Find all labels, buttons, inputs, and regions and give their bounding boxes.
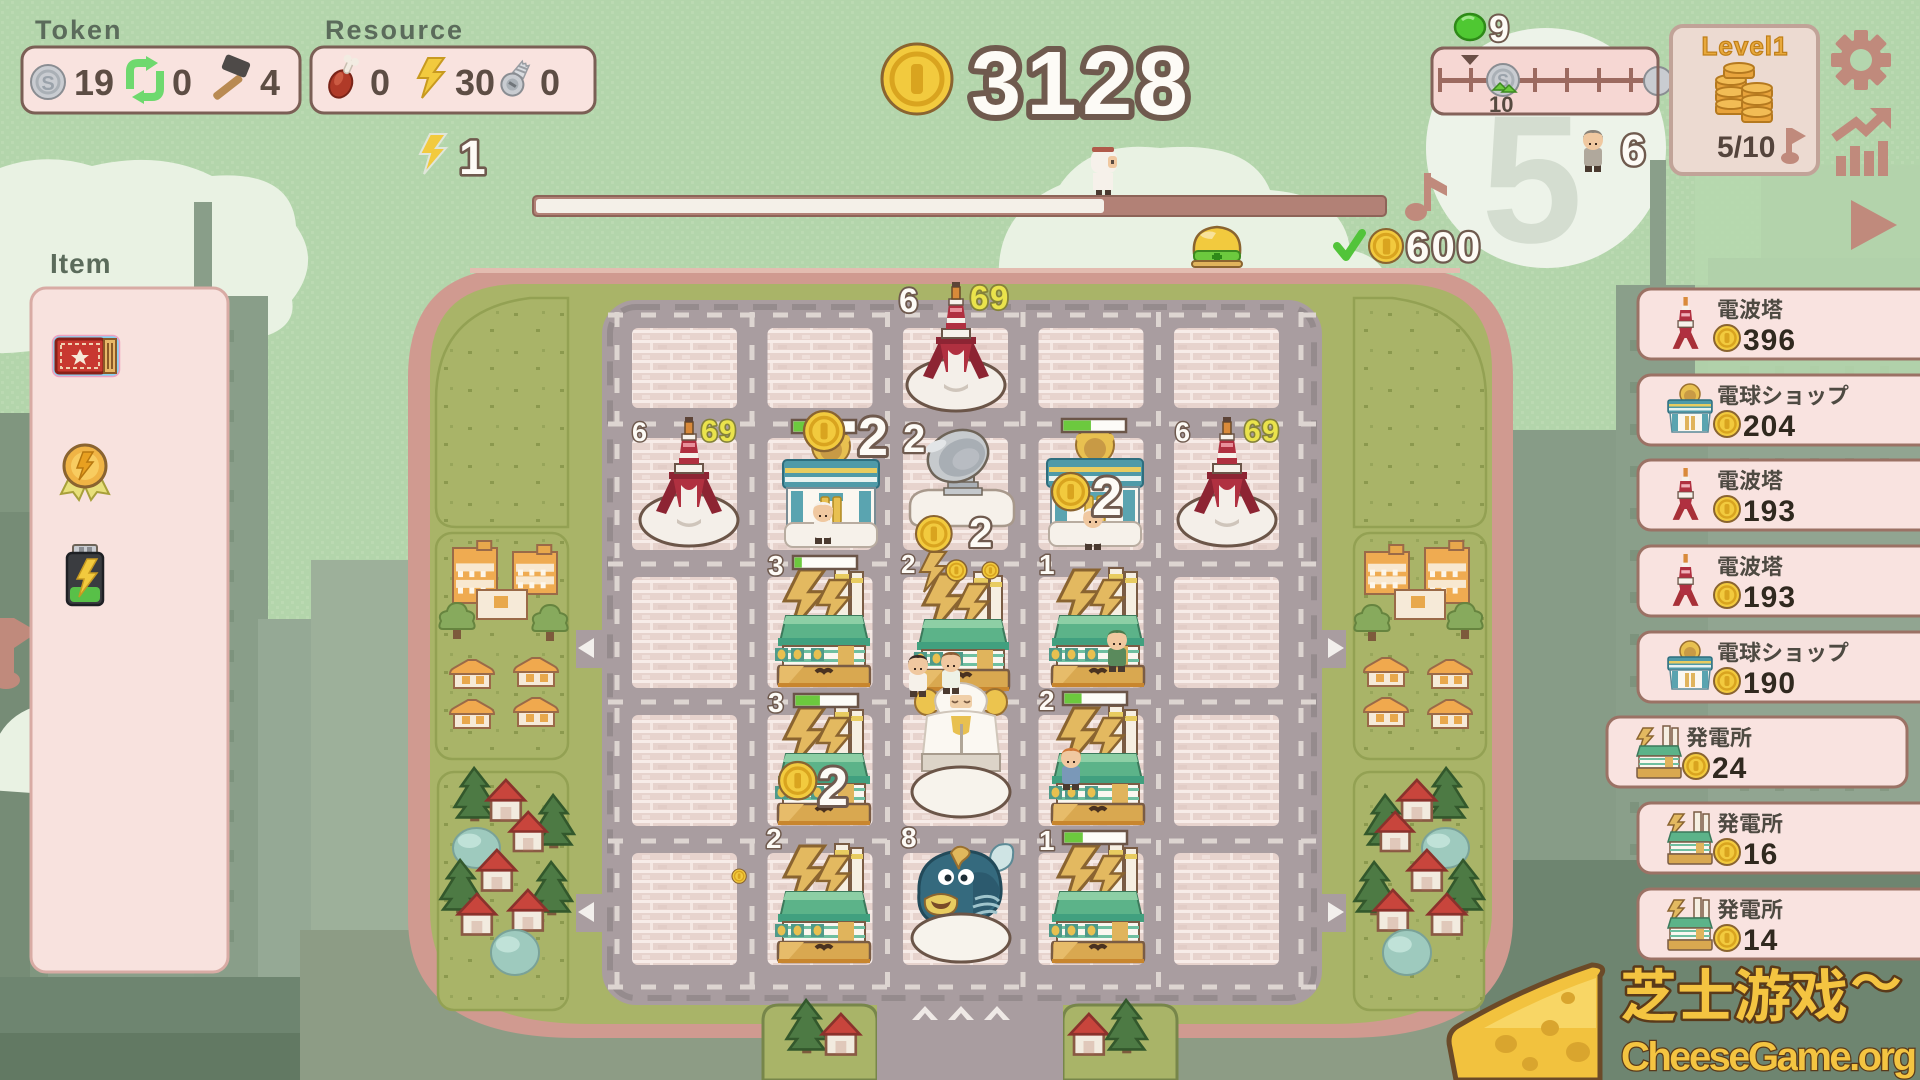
svg-text:8: 8 xyxy=(901,822,918,853)
svg-text:0: 0 xyxy=(172,62,192,103)
svg-text:2: 2 xyxy=(901,549,917,579)
svg-text:2: 2 xyxy=(1092,467,1125,527)
svg-text:S: S xyxy=(41,73,54,95)
svg-text:Resource: Resource xyxy=(325,15,464,45)
svg-text:69: 69 xyxy=(701,415,737,448)
svg-text:0: 0 xyxy=(370,62,390,103)
svg-text:1: 1 xyxy=(1039,549,1056,580)
svg-text:16: 16 xyxy=(1743,838,1778,871)
svg-text:3: 3 xyxy=(768,550,785,581)
svg-text:6: 6 xyxy=(899,282,920,320)
svg-text:2: 2 xyxy=(818,757,851,817)
svg-text:4: 4 xyxy=(260,62,280,103)
svg-text:2: 2 xyxy=(969,509,994,556)
svg-text:69: 69 xyxy=(1244,415,1280,448)
svg-text:19: 19 xyxy=(74,62,114,103)
svg-text:6: 6 xyxy=(1621,126,1648,175)
svg-text:190: 190 xyxy=(1743,667,1796,700)
svg-text:9: 9 xyxy=(1489,8,1511,49)
svg-text:6: 6 xyxy=(1175,417,1191,447)
svg-text:69: 69 xyxy=(970,279,1010,316)
svg-text:0: 0 xyxy=(540,62,560,103)
svg-text:1: 1 xyxy=(459,132,488,185)
svg-text:5/10: 5/10 xyxy=(1717,131,1775,164)
svg-text:3128: 3128 xyxy=(971,34,1193,134)
svg-text:1: 1 xyxy=(1039,825,1056,856)
svg-text:Token: Token xyxy=(35,15,123,45)
svg-text:2: 2 xyxy=(1039,685,1056,716)
svg-text:3: 3 xyxy=(768,687,785,718)
svg-text:396: 396 xyxy=(1743,324,1796,357)
svg-text:30: 30 xyxy=(455,62,495,103)
svg-text:204: 204 xyxy=(1743,410,1796,443)
svg-text:14: 14 xyxy=(1743,924,1778,957)
svg-text:Item: Item xyxy=(50,248,112,279)
svg-text:CheeseGame.org: CheeseGame.org xyxy=(1621,1035,1917,1079)
svg-text:2: 2 xyxy=(766,823,783,854)
svg-text:2: 2 xyxy=(858,407,891,467)
svg-text:24: 24 xyxy=(1712,752,1747,785)
svg-text:193: 193 xyxy=(1743,495,1796,528)
svg-text:Level1: Level1 xyxy=(1702,31,1789,61)
svg-text:6: 6 xyxy=(632,417,648,447)
svg-text:193: 193 xyxy=(1743,581,1796,614)
svg-text:600: 600 xyxy=(1406,223,1482,270)
svg-text:2: 2 xyxy=(903,417,927,461)
